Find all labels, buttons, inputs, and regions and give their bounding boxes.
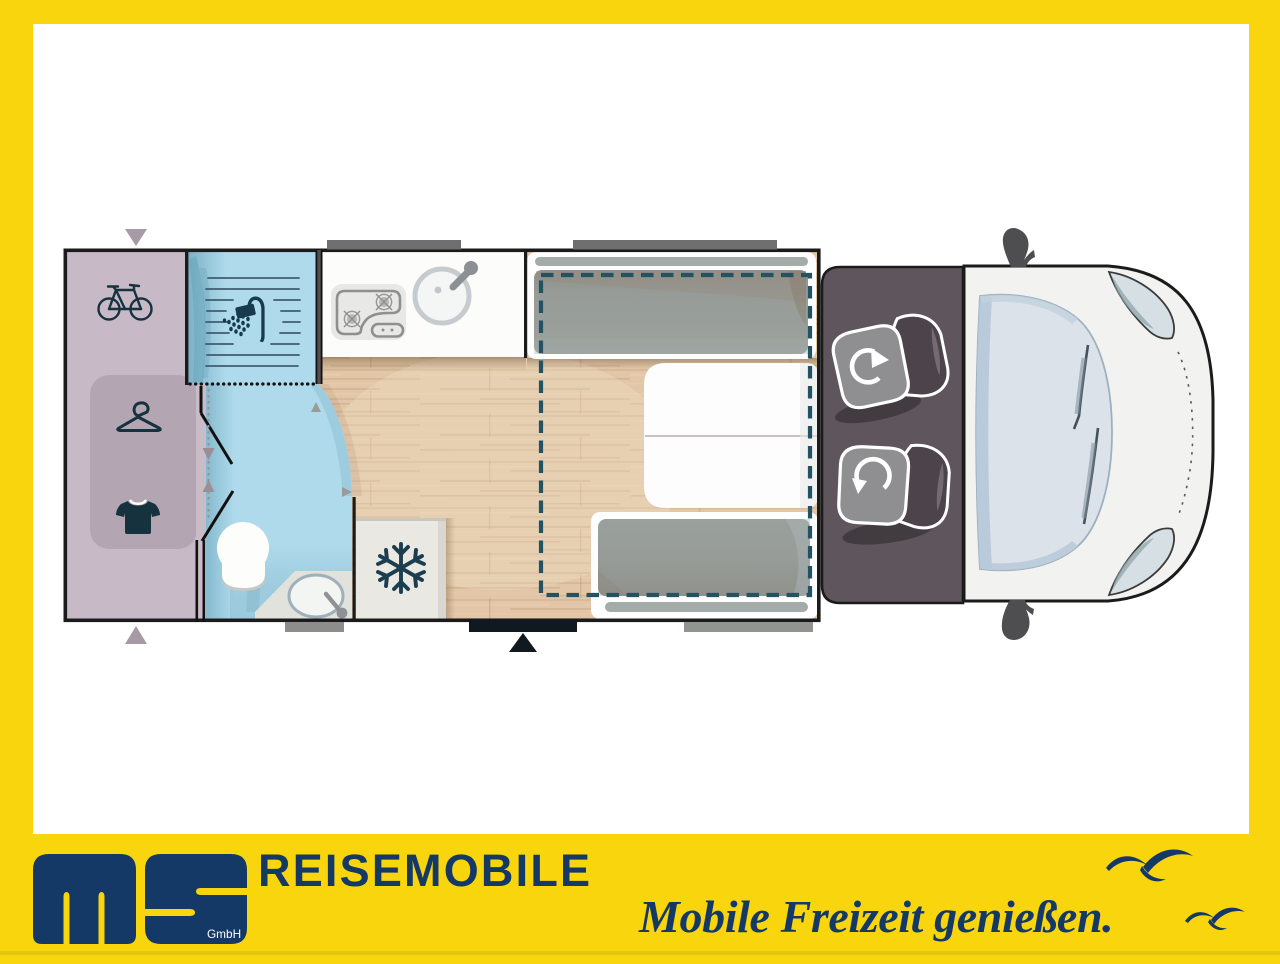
svg-text:REISEMOBILE: REISEMOBILE: [258, 845, 592, 896]
svg-text:GmbH: GmbH: [207, 927, 241, 941]
svg-text:Mobile Freizeit genießen.: Mobile Freizeit genießen.: [638, 891, 1113, 942]
